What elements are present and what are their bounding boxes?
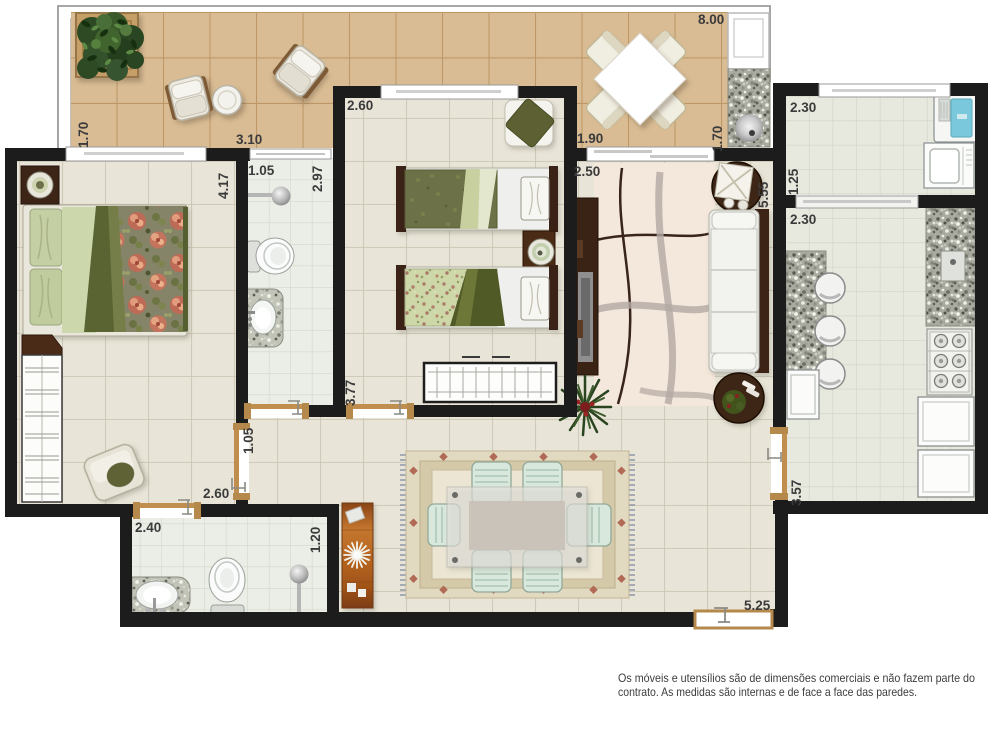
svg-text:2.30: 2.30	[790, 100, 816, 115]
svg-text:5.55: 5.55	[756, 181, 771, 208]
svg-text:2.50: 2.50	[574, 164, 600, 179]
svg-text:1.70: 1.70	[710, 126, 725, 152]
svg-text:3.57: 3.57	[789, 480, 804, 506]
svg-text:4.17: 4.17	[216, 173, 231, 199]
svg-text:2.60: 2.60	[347, 98, 373, 113]
svg-text:2.97: 2.97	[310, 166, 325, 192]
svg-text:1.90: 1.90	[577, 131, 603, 146]
svg-text:1.05: 1.05	[241, 427, 256, 454]
svg-text:contrato. As medidas são inter: contrato. As medidas são internas e de f…	[618, 685, 917, 699]
svg-text:5.25: 5.25	[744, 598, 771, 613]
svg-text:1.70: 1.70	[76, 122, 91, 148]
svg-text:2.60: 2.60	[203, 486, 229, 501]
svg-text:3.77: 3.77	[343, 380, 358, 406]
svg-text:3.10: 3.10	[236, 132, 262, 147]
svg-text:1.20: 1.20	[308, 527, 323, 553]
svg-text:Os móveis e utensílios são de: Os móveis e utensílios são de dimensões …	[618, 671, 975, 685]
svg-text:1.05: 1.05	[248, 163, 275, 178]
svg-text:1.25: 1.25	[786, 168, 801, 195]
svg-text:8.00: 8.00	[698, 12, 724, 27]
svg-text:2.30: 2.30	[790, 212, 816, 227]
svg-text:2.40: 2.40	[135, 520, 161, 535]
